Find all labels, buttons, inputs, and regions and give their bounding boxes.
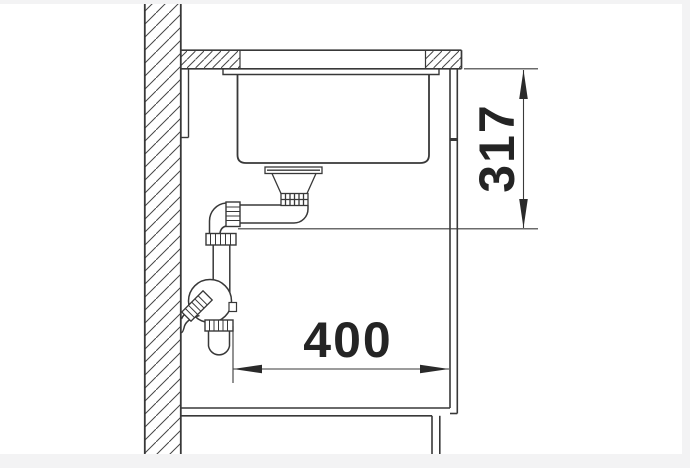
wall-section xyxy=(145,4,182,454)
sink-bowl xyxy=(223,70,439,164)
worktop-hatch-left xyxy=(182,51,241,68)
page-frame-right xyxy=(682,0,690,468)
trap-cup xyxy=(209,331,230,355)
sink-installation-drawing: 317 400 xyxy=(0,0,690,468)
sink-flange xyxy=(223,70,439,75)
page-frame-top xyxy=(0,0,690,4)
mounting-rails xyxy=(181,69,458,140)
sink-bowl-outline xyxy=(238,75,430,164)
worktop xyxy=(181,50,462,69)
arrowhead-right xyxy=(420,365,449,374)
arrowhead-left xyxy=(233,365,262,374)
cabinet xyxy=(181,69,457,454)
arrowhead-down xyxy=(519,199,528,228)
pipe-union-nut xyxy=(226,202,240,227)
dimension-width-label: 400 xyxy=(303,315,392,365)
dimension-height-label: 317 xyxy=(472,103,522,192)
arrowhead-up xyxy=(519,70,528,99)
drain-strainer xyxy=(265,167,322,206)
page-frame-bottom xyxy=(0,454,690,468)
technical-drawing-canvas xyxy=(0,0,690,468)
siphon-trap xyxy=(182,280,237,355)
wall-hatch xyxy=(145,4,182,454)
worktop-hatch-right xyxy=(426,51,462,68)
